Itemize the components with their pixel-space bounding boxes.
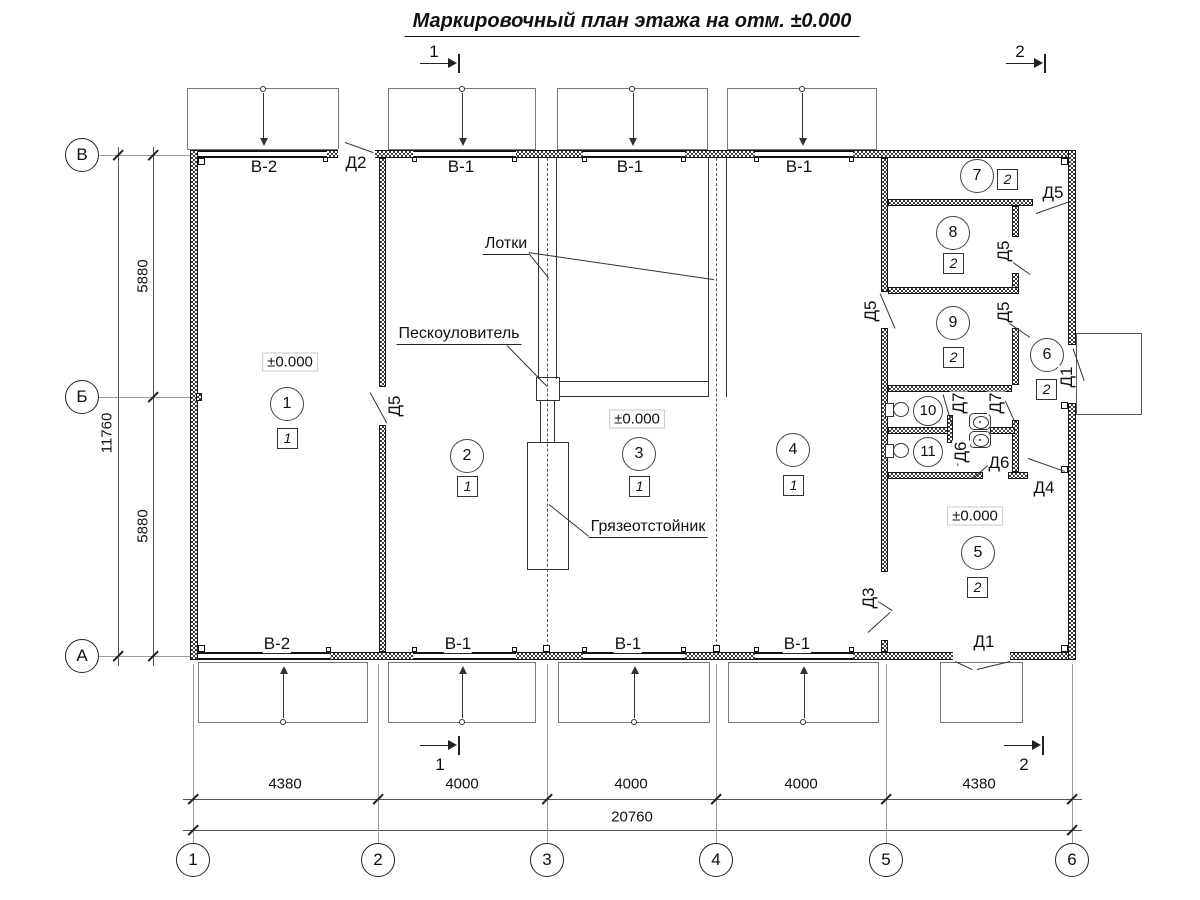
wall-jamb xyxy=(198,645,205,652)
section-number: 2 xyxy=(1015,42,1024,62)
room-number-circle: 1 xyxy=(270,387,304,421)
door-label: Д1 xyxy=(973,633,996,651)
grid-bubble-column: 3 xyxy=(530,843,564,877)
dim-label: 4380 xyxy=(266,776,303,793)
grid-line-row xyxy=(99,397,190,398)
grid-bubble-row: А xyxy=(65,639,99,673)
canopy xyxy=(557,88,708,150)
door-label: Д3 xyxy=(860,587,878,610)
leader-line-d5 xyxy=(1036,201,1070,214)
section-arrow-tick xyxy=(1044,54,1046,73)
grid-line-row xyxy=(99,155,190,156)
canopy-arrow-origin xyxy=(800,719,806,725)
canopy-arrow-down xyxy=(629,138,637,150)
wall-interior-grid2-upper xyxy=(379,158,386,387)
toilet-icon xyxy=(893,402,909,417)
wall-jamb xyxy=(198,158,205,165)
canopy-arrow-down xyxy=(260,138,268,150)
canopy-arrow-down xyxy=(459,138,467,150)
leader-line-d3 xyxy=(878,601,893,611)
door-canopy xyxy=(940,662,1023,723)
door-label: Д5 xyxy=(995,301,1013,324)
dim-label-total: 20760 xyxy=(609,809,655,826)
canopy xyxy=(727,88,877,150)
room-number-circle: 8 xyxy=(936,216,970,250)
section-mark-bottom-1: 1 xyxy=(420,736,472,776)
sink-icon xyxy=(969,413,991,430)
wall-room8-east-upper xyxy=(1012,206,1019,237)
wall-room11-south-corner xyxy=(1008,472,1028,479)
dimension-line-left-2 xyxy=(118,147,119,666)
door-label: Д6 xyxy=(952,441,970,464)
dim-label: 4000 xyxy=(443,776,480,793)
canopy-arrow-origin xyxy=(799,86,805,92)
window-opening-v1-bottom xyxy=(583,653,685,659)
canopy-arrow-origin xyxy=(260,86,266,92)
section-arrow-tick xyxy=(1042,736,1044,755)
wall-room11-south xyxy=(888,472,983,479)
room-number-circle: 5 xyxy=(961,536,995,570)
grid-line-column xyxy=(547,664,548,844)
room-category-box: 2 xyxy=(967,577,988,598)
grid-line-column xyxy=(886,664,887,844)
toilet-icon xyxy=(893,443,909,458)
grid-line-column xyxy=(193,664,194,844)
dim-label-total: 11760 xyxy=(99,411,116,456)
canopy-arrow-shaft xyxy=(462,671,463,718)
mud-settler-tank xyxy=(527,442,569,570)
room-number-circle: 2 xyxy=(450,439,484,473)
grid-line-column xyxy=(1072,664,1073,844)
room-category-box: 1 xyxy=(629,476,650,497)
door-label: Д5 xyxy=(1042,184,1065,202)
sink-icon xyxy=(969,431,991,448)
section-arrow-shaft xyxy=(420,745,450,746)
wall-pilaster xyxy=(196,393,202,401)
room-category-box: 2 xyxy=(943,253,964,274)
canopy-arrow-down xyxy=(799,138,807,150)
dimension-line-bottom-1 xyxy=(183,799,1082,800)
room-number-circle: 10 xyxy=(913,396,943,426)
door-label: Д6 xyxy=(988,454,1011,472)
door-label: Д1 xyxy=(1058,366,1076,389)
annotation-label: Пескоуловитель xyxy=(397,325,522,345)
wall-interior-grid5-stub xyxy=(881,640,888,652)
drain-channel-cross xyxy=(559,381,709,397)
canopy xyxy=(388,662,536,723)
annotation-label: Грязеотстойник xyxy=(589,518,708,538)
window-label: В-1 xyxy=(616,158,644,176)
wall-room8-south xyxy=(888,287,1019,294)
room-category-box: 2 xyxy=(943,347,964,368)
door-swing-d3 xyxy=(868,612,891,633)
canopy-arrow-origin xyxy=(280,719,286,725)
canopy-arrow-shaft xyxy=(802,93,803,141)
room-number-circle: 3 xyxy=(622,437,656,471)
floor-plan-drawing: Маркировочный план этажа на отм. ±0.000 … xyxy=(0,0,1200,900)
exterior-platform xyxy=(1076,333,1142,415)
window-label: В-1 xyxy=(785,158,813,176)
section-arrow-head xyxy=(448,740,462,750)
window-opening-v1-bottom xyxy=(755,653,853,659)
section-number: 2 xyxy=(1019,755,1028,775)
window-label: В-1 xyxy=(444,635,472,653)
canopy xyxy=(558,662,710,723)
window-opening-v2-bottom xyxy=(198,653,330,659)
section-number: 1 xyxy=(435,755,444,775)
door-hinge-jamb xyxy=(1061,402,1068,409)
canopy-arrow-shaft xyxy=(283,671,284,718)
grid-bubble-row: Б xyxy=(65,380,99,414)
leader-line-d7 xyxy=(1004,400,1015,422)
door-label: Д7 xyxy=(987,392,1005,415)
room-number-circle: 4 xyxy=(776,433,810,467)
leader-line-d5 xyxy=(879,293,895,328)
canopy-arrow-origin xyxy=(459,86,465,92)
wall-room7-south xyxy=(888,199,1033,206)
wall-jamb xyxy=(1061,645,1068,652)
canopy-arrow-shaft xyxy=(633,93,634,141)
room-number-circle: 9 xyxy=(936,306,970,340)
dim-label: 4000 xyxy=(612,776,649,793)
wall-wc-divider-right xyxy=(990,427,1015,434)
wall-interior-grid5-upper xyxy=(881,158,888,292)
window-opening-v1-bottom xyxy=(413,653,516,659)
canopy xyxy=(198,662,368,723)
wall-exterior-left xyxy=(190,150,198,660)
door-label: Д2 xyxy=(345,154,368,172)
section-arrow-head xyxy=(448,58,462,68)
drain-channel-left-lower xyxy=(540,401,555,442)
page-title: Маркировочный план этажа на отм. ±0.000 xyxy=(405,10,860,37)
window-label: В-1 xyxy=(614,635,642,653)
grid-bubble-column: 5 xyxy=(869,843,903,877)
window-label: В-1 xyxy=(447,158,475,176)
wall-wc-divider-left xyxy=(888,427,948,434)
grid-bubble-column: 2 xyxy=(361,843,395,877)
dimension-line-left-1 xyxy=(153,147,154,666)
section-arrow-tick xyxy=(458,736,460,755)
section-mark-bottom-2: 2 xyxy=(1004,736,1056,776)
door-label: Д5 xyxy=(995,240,1013,263)
door-label: Д7 xyxy=(950,392,968,415)
canopy xyxy=(187,88,339,150)
dim-label: 5880 xyxy=(135,507,152,544)
grid-bubble-column: 1 xyxy=(176,843,210,877)
section-mark-top-2: 2 xyxy=(1006,40,1058,76)
wall-notch xyxy=(543,645,550,652)
grid-bubble-column: 4 xyxy=(699,843,733,877)
section-arrow-shaft xyxy=(420,63,450,64)
room-number-circle: 7 xyxy=(960,159,994,193)
drain-channel-right xyxy=(708,158,727,397)
room-category-box: 1 xyxy=(277,428,298,449)
dim-label: 4000 xyxy=(782,776,819,793)
grid-bubble-column: 6 xyxy=(1055,843,1089,877)
window-label: В-2 xyxy=(263,635,291,653)
window-label: В-1 xyxy=(783,635,811,653)
room-category-box: 1 xyxy=(783,475,804,496)
wall-jamb xyxy=(1061,158,1068,165)
section-arrow-head xyxy=(1034,58,1048,68)
canopy-arrow-origin xyxy=(459,719,465,725)
room-category-box: 1 xyxy=(457,476,478,497)
dim-label: 5880 xyxy=(135,257,152,294)
grid-line-row xyxy=(99,656,190,657)
grid-line-column xyxy=(716,664,717,844)
elevation-label: ±0.000 xyxy=(609,410,665,429)
door-opening-d1-bottom xyxy=(953,651,1010,661)
grid-line-column xyxy=(378,664,379,844)
dim-label: 4380 xyxy=(960,776,997,793)
section-arrow-shaft xyxy=(1004,745,1034,746)
elevation-label: ±0.000 xyxy=(947,507,1003,526)
section-arrow-head xyxy=(1032,740,1046,750)
canopy xyxy=(728,662,879,723)
door-label: Д5 xyxy=(862,300,880,323)
canopy-arrow-shaft xyxy=(804,671,805,718)
door-label: Д4 xyxy=(1033,479,1056,497)
wall-room9-east xyxy=(1012,328,1019,385)
wall-exterior-right-lower xyxy=(1068,403,1076,660)
canopy xyxy=(388,88,536,150)
leader-line-d4 xyxy=(1028,458,1065,472)
door-label: Д5 xyxy=(386,395,404,418)
wall-interior-grid2-lower xyxy=(379,425,386,652)
canopy-arrow-shaft xyxy=(263,93,264,141)
window-label: В-2 xyxy=(250,158,278,176)
canopy-arrow-origin xyxy=(631,719,637,725)
wall-exterior-right-upper xyxy=(1068,150,1076,345)
room-number-circle: 11 xyxy=(913,437,943,467)
section-arrow-tick xyxy=(458,54,460,73)
wall-notch xyxy=(713,645,720,652)
section-arrow-shaft xyxy=(1006,63,1036,64)
canopy-arrow-origin xyxy=(629,86,635,92)
canopy-arrow-shaft xyxy=(634,671,635,718)
dimension-line-bottom-2 xyxy=(183,830,1082,831)
annotation-label: Лотки xyxy=(483,235,529,255)
section-number: 1 xyxy=(429,42,438,62)
room-category-box: 2 xyxy=(997,169,1018,190)
section-mark-top-1: 1 xyxy=(420,40,472,76)
canopy-arrow-shaft xyxy=(462,93,463,141)
elevation-label: ±0.000 xyxy=(262,353,318,372)
grid-bubble-row: В xyxy=(65,138,99,172)
room-category-box: 2 xyxy=(1036,379,1057,400)
